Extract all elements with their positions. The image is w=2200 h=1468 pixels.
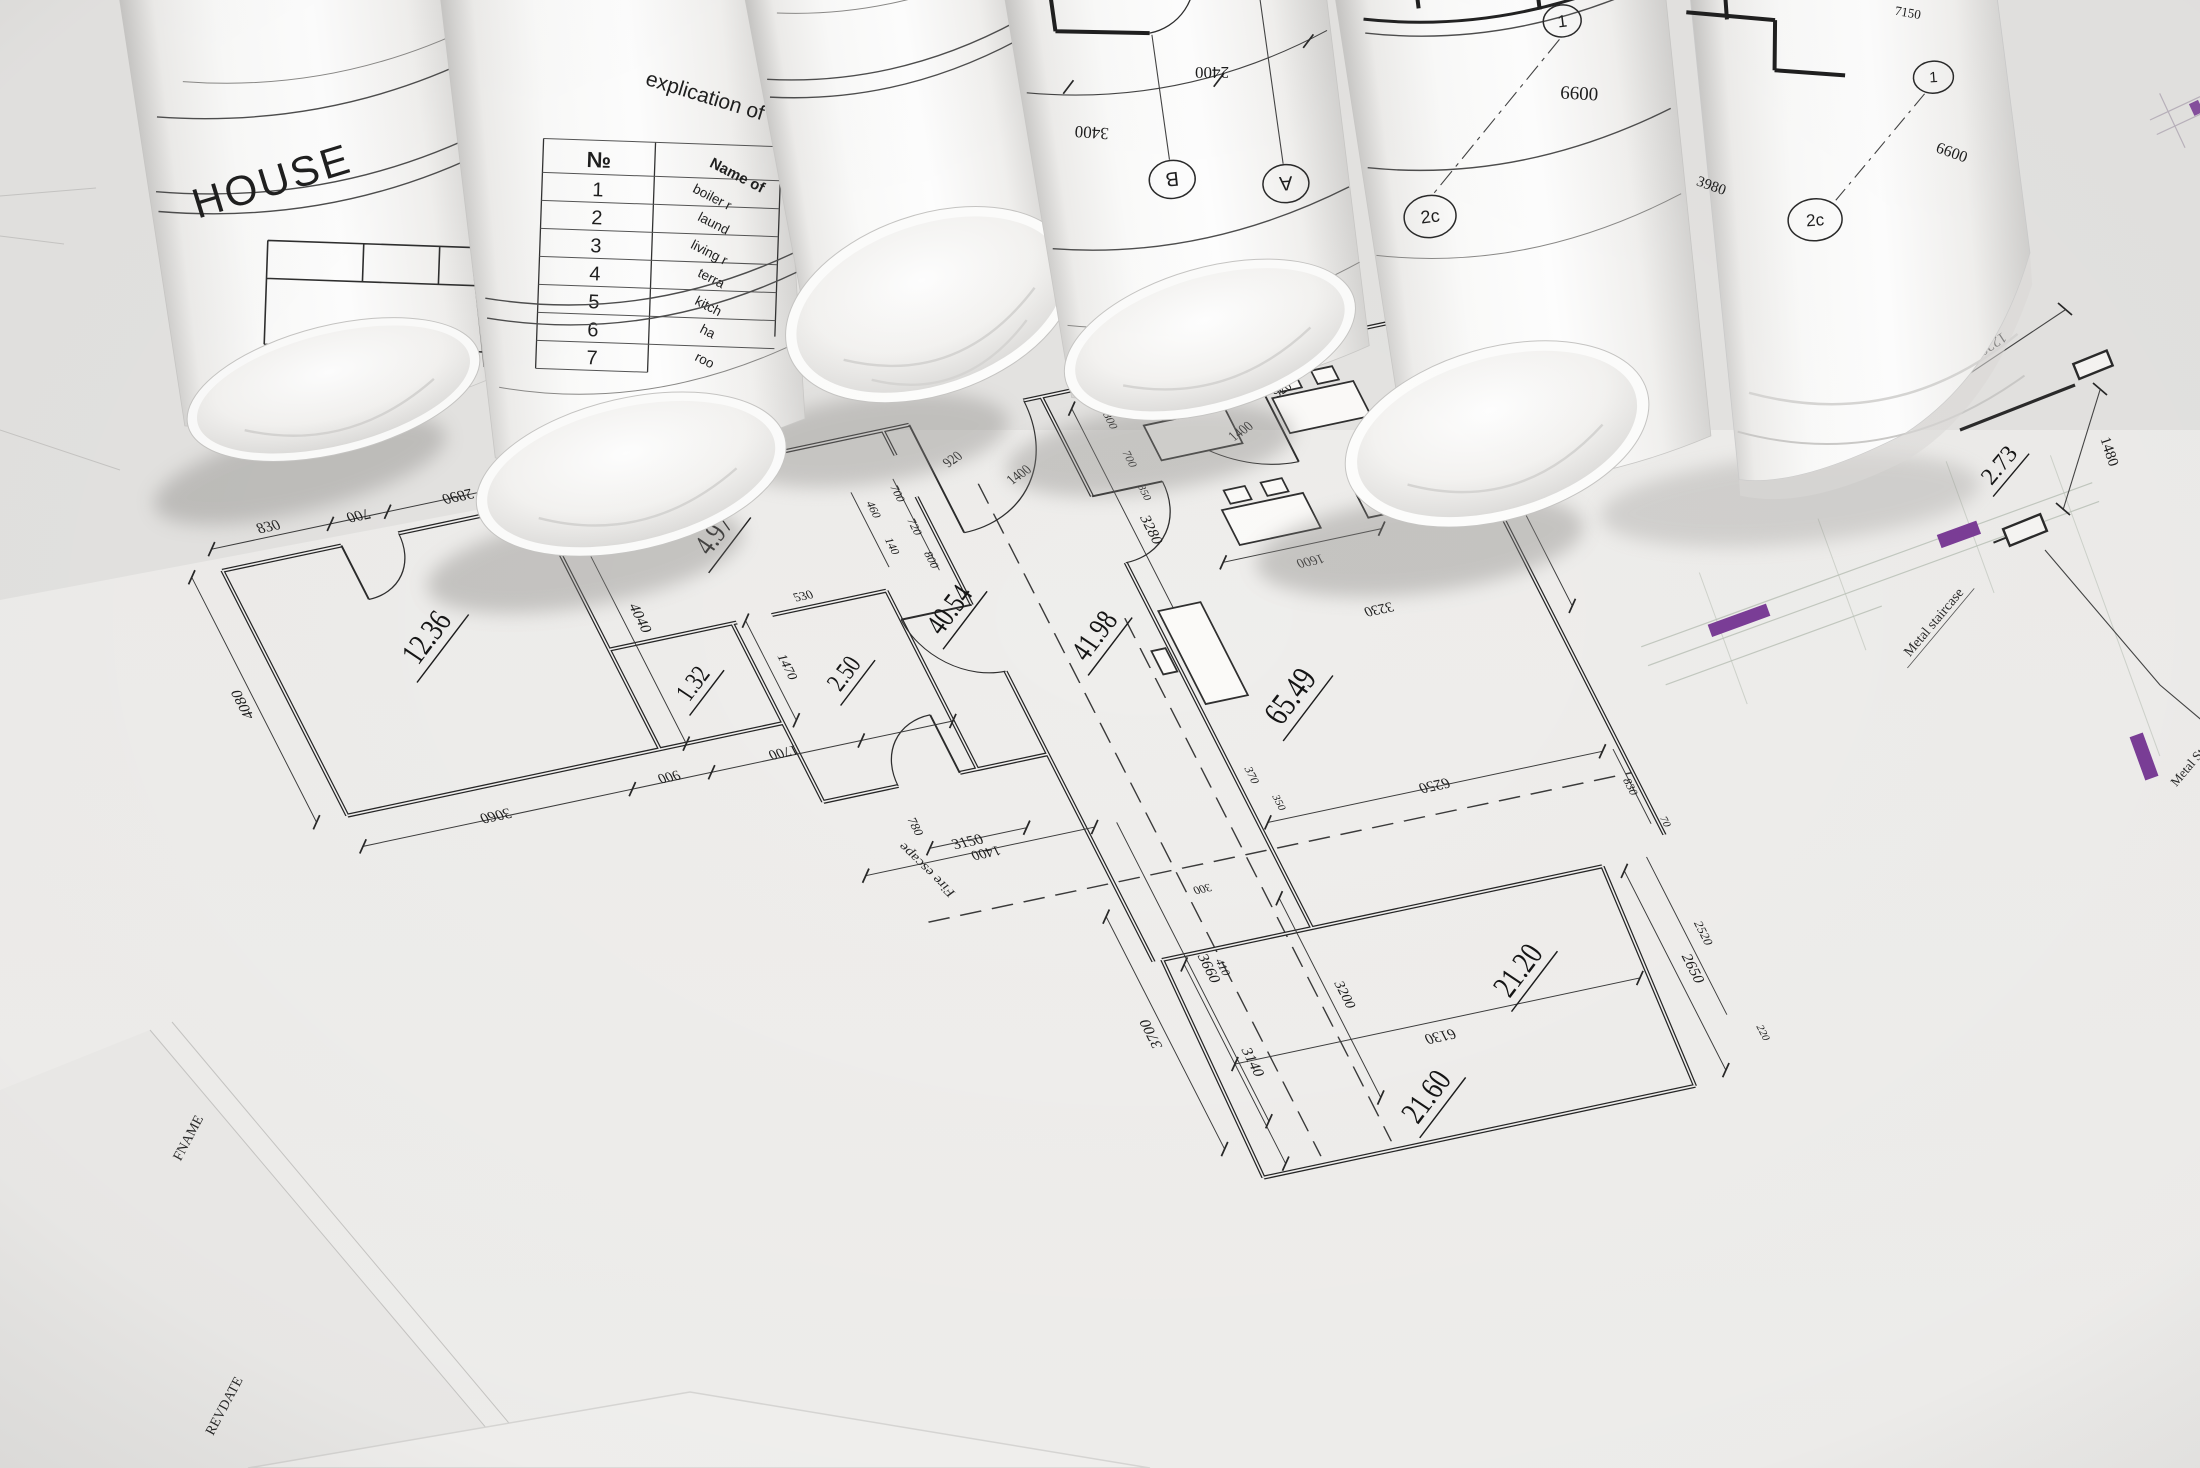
vignette [0,0,2200,1468]
photo-blueprint-scene: FNAME REVDATE [0,0,2200,1468]
blueprint-photo: FNAME REVDATE [0,0,2200,1468]
